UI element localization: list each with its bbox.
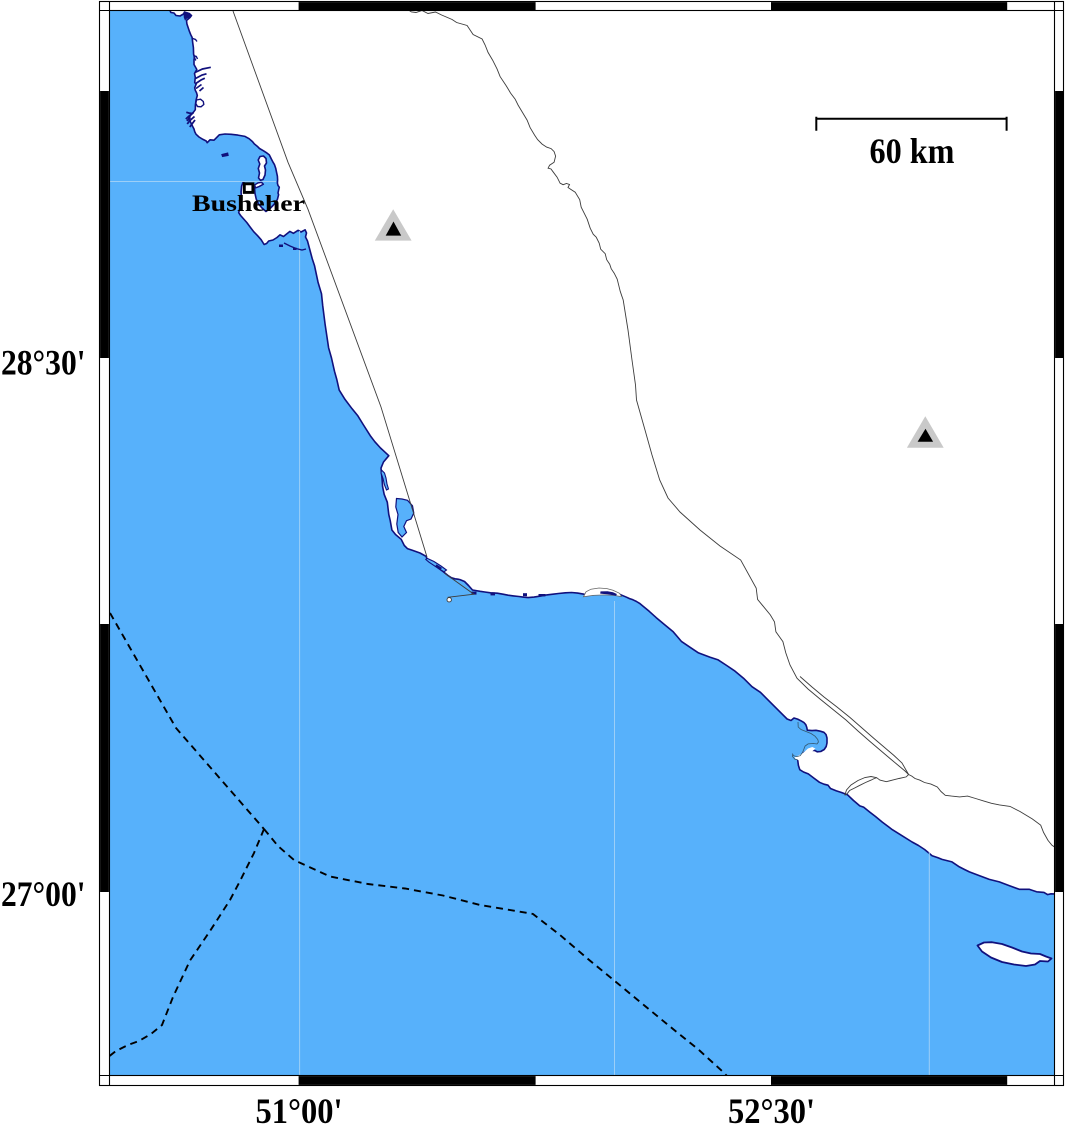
svg-text:51°00': 51°00' xyxy=(256,1091,343,1124)
svg-text:28°30': 28°30' xyxy=(1,343,86,383)
svg-text:Busheher: Busheher xyxy=(192,191,305,217)
svg-text:60 km: 60 km xyxy=(870,131,955,171)
svg-text:52°30': 52°30' xyxy=(728,1091,815,1124)
svg-text:27°00': 27°00' xyxy=(1,874,86,914)
